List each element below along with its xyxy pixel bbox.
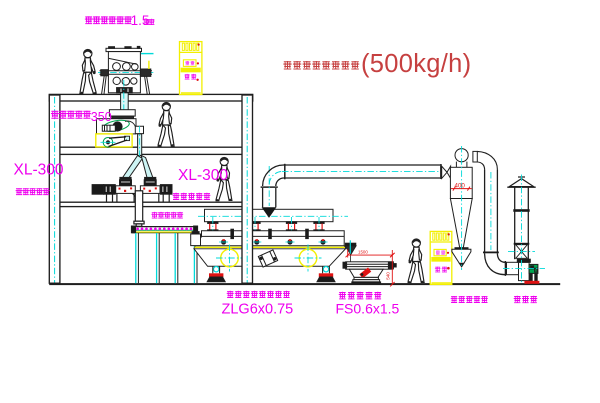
svg-text:350: 350	[91, 110, 112, 124]
svg-text:XL-300: XL-300	[14, 162, 64, 179]
svg-text:FS0.6x1.5: FS0.6x1.5	[336, 301, 400, 317]
svg-text:540: 540	[386, 272, 391, 280]
svg-text:(500kg/h): (500kg/h)	[361, 50, 471, 78]
svg-text:XL-300: XL-300	[178, 167, 228, 184]
svg-text:1500: 1500	[358, 250, 368, 255]
svg-text:400: 400	[455, 183, 466, 190]
svg-text:ZLG6x0.75: ZLG6x0.75	[222, 302, 294, 318]
